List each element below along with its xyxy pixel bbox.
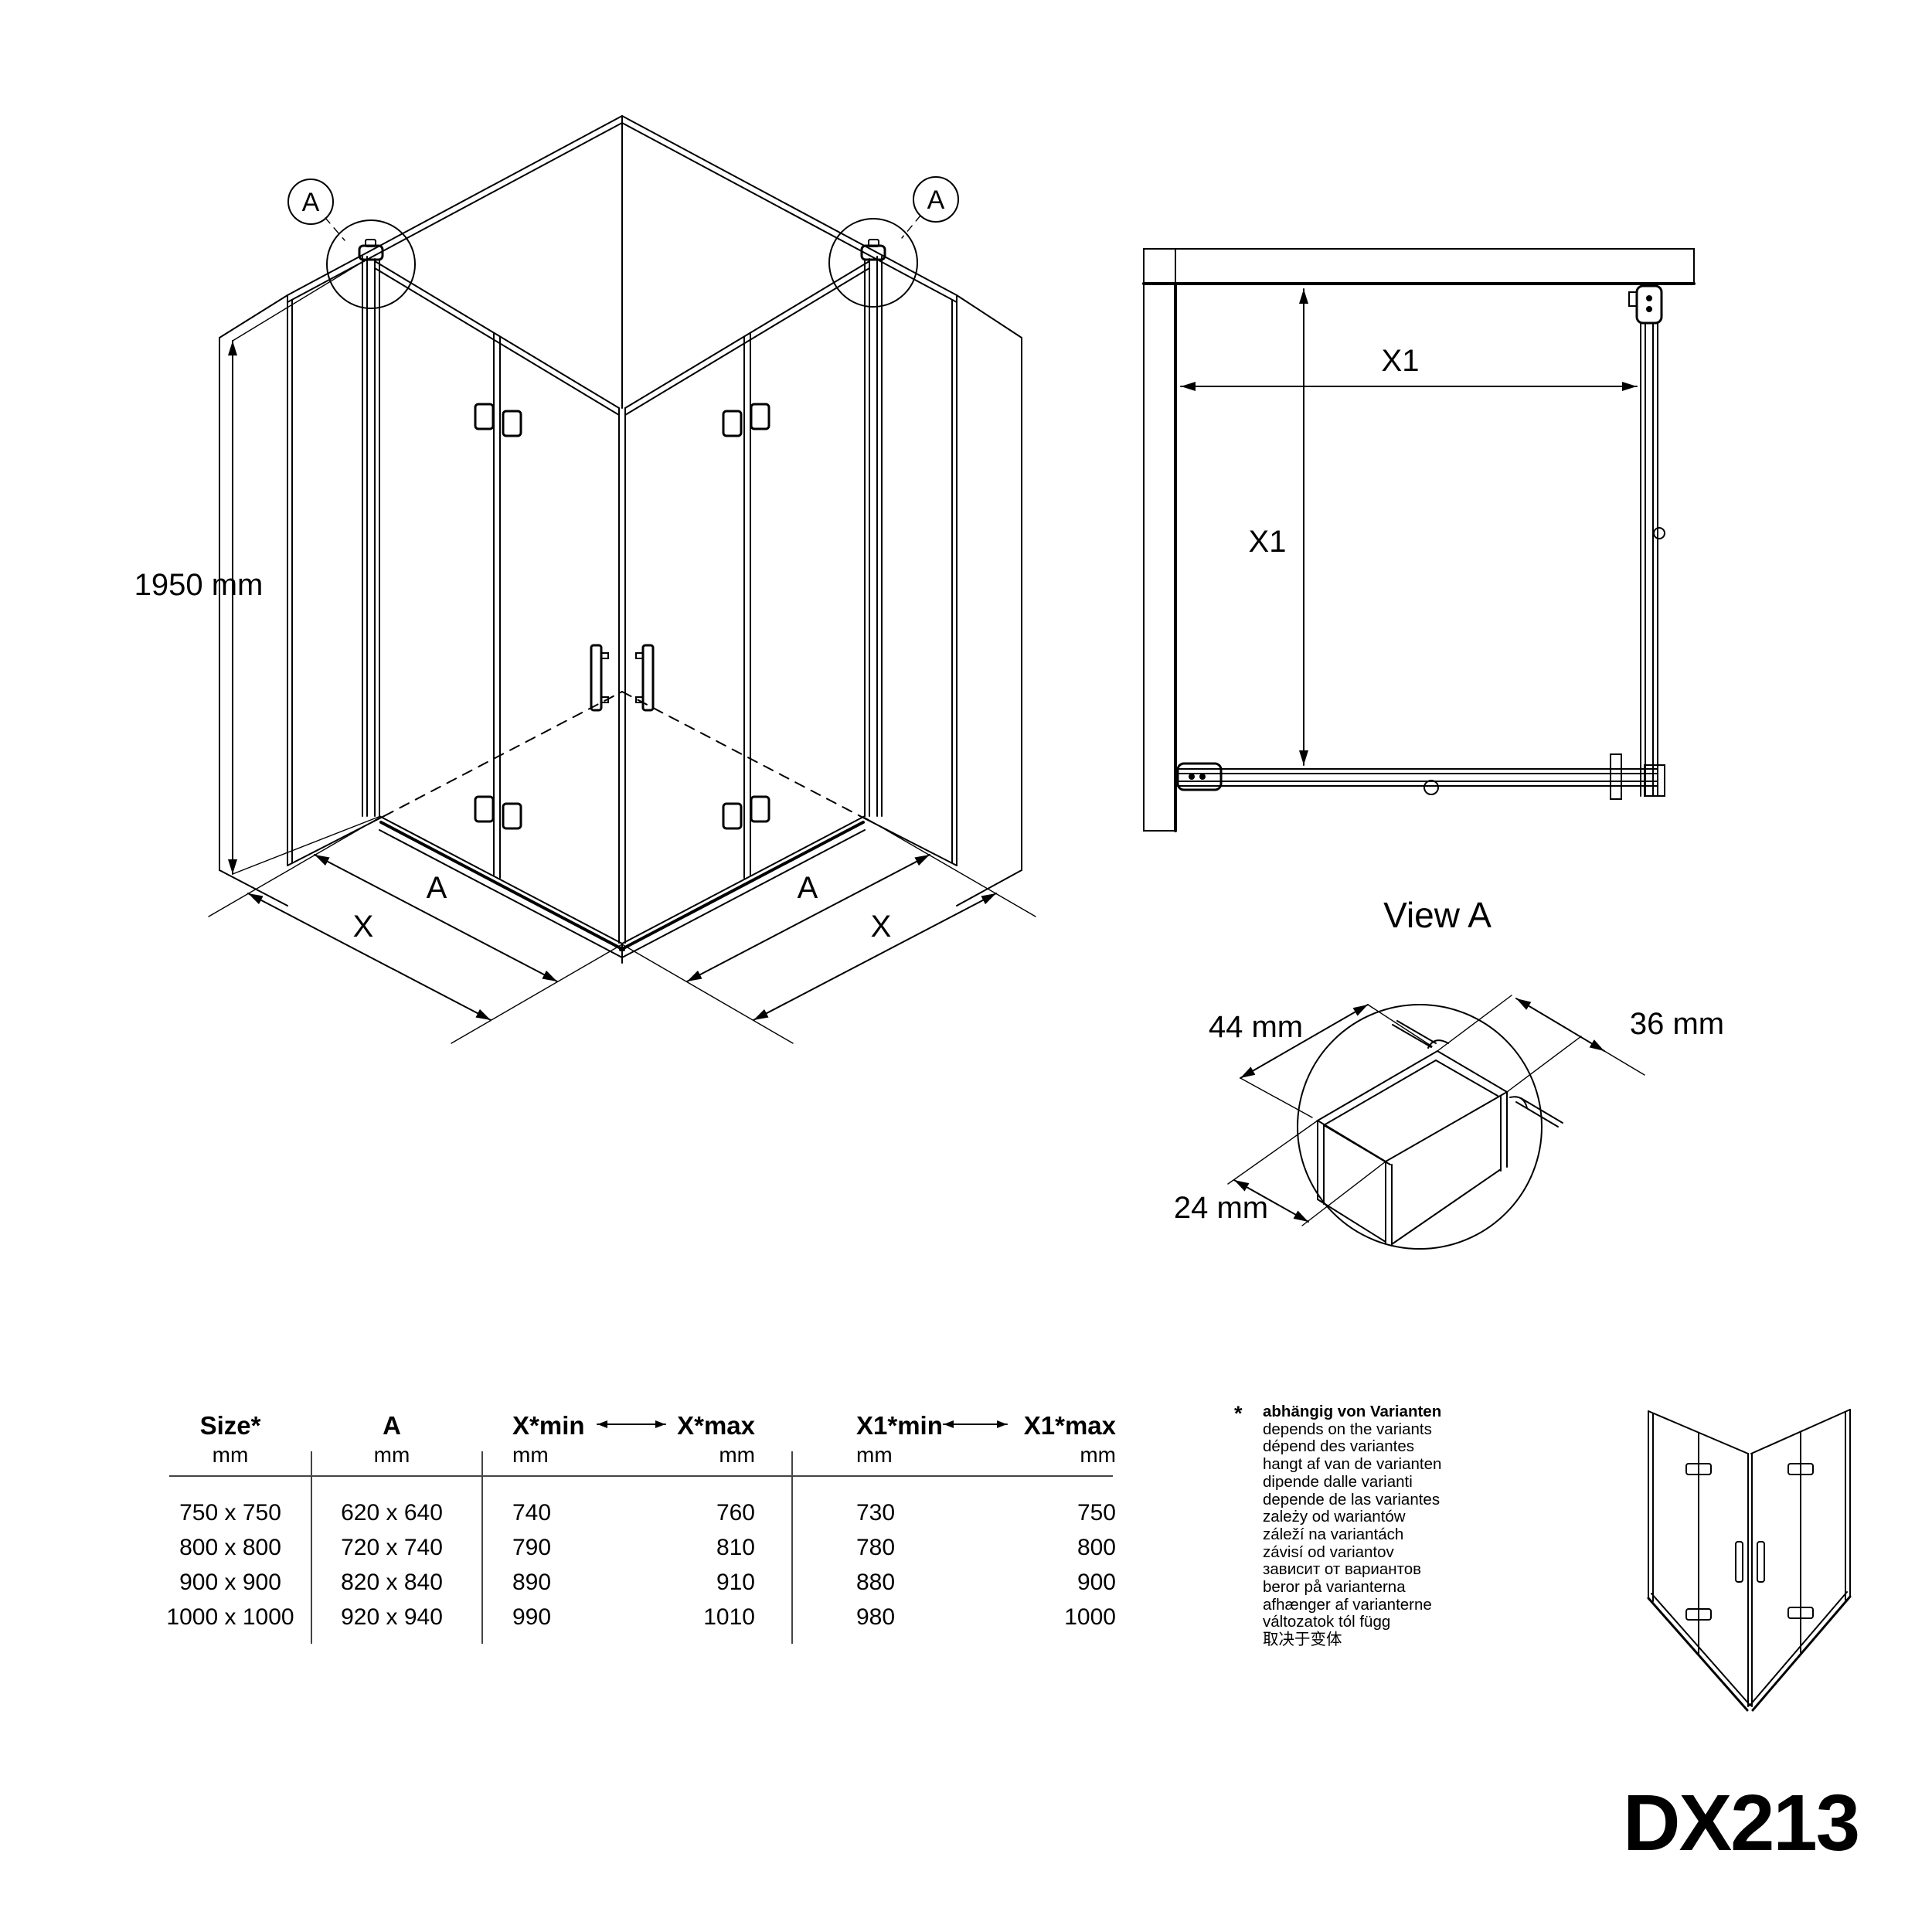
wall-profile-right [862,240,885,816]
table-column-x1max: X1*max mm 750 800 900 1000 [992,1413,1116,1439]
footnote-line: zależy od wariantów [1263,1509,1566,1526]
column-header: X*max [639,1413,755,1439]
column-unit: mm [639,1444,755,1467]
table-column-a: A mm 620 x 640 720 x 740 820 x 840 920 x… [315,1413,469,1439]
table-cell: 780 [856,1536,980,1560]
column-unit: mm [856,1444,980,1467]
table-separator [791,1451,793,1644]
footnote-line: beror på varianterna [1263,1579,1566,1597]
plan-dimension-horizontal: X1 [1181,344,1637,386]
footnote-line: 取决于变体 [1263,1631,1566,1649]
wall-profile-left [359,240,383,816]
product-thumbnail-icon [1631,1399,1870,1723]
table-cell: 730 [856,1501,980,1526]
mini-handles [1736,1542,1764,1582]
footnote-line: depends on the variants [1263,1421,1566,1439]
table-cell: 820 x 840 [315,1570,469,1595]
table-cell: 890 [512,1570,628,1595]
back-glass-panels [287,116,957,866]
wall-hatching [1144,249,1694,831]
table-cell: 1010 [639,1605,755,1630]
shower-tray [379,692,865,963]
plan-x1-horizontal-label: X1 [1382,344,1420,378]
table-separator [481,1451,483,1644]
plan-bottom-profile [1178,754,1665,799]
variants-footnote: * abhängig von Varianten depends on the … [1234,1403,1566,1649]
column-header: A [315,1413,469,1439]
detail-36mm-label: 36 mm [1630,1007,1724,1041]
table-cell: 900 [992,1570,1116,1595]
detail-circle-right: A [829,177,958,307]
footnote-line: abhängig von Varianten [1263,1403,1566,1421]
footnote-line: változatok tól függ [1263,1614,1566,1631]
table-cell: 920 x 940 [315,1605,469,1630]
plan-x1-vertical-label: X1 [1249,525,1287,559]
hinge [475,404,769,828]
table-cell: 720 x 740 [315,1536,469,1560]
table-cell: 1000 x 1000 [145,1605,315,1630]
column-header: Size* [145,1413,315,1439]
balloon-a-left-label: A [302,188,320,217]
column-unit: mm [512,1444,628,1467]
table-cell: 810 [639,1536,755,1560]
footnote-line: hangt af van de varianten [1263,1456,1566,1474]
profile-detail-view: 44 mm 36 mm 24 mm [1144,974,1777,1329]
footnote-line: зависит от вариантов [1263,1561,1566,1579]
door-handle [591,645,653,710]
view-a-plan: X1 X1 View A [1113,224,1777,1028]
detail-dimensions: 44 mm 36 mm 24 mm [1174,995,1724,1226]
plan-dimension-vertical: X1 [1249,289,1304,765]
isometric-drawing: 1950 mm A X A X A [93,62,1097,1182]
dimension-x-right-label: X [871,910,892,944]
height-dimension: 1950 mm [134,262,379,874]
balloon-a-right-label: A [927,185,945,215]
background-walls [219,295,1022,906]
table-column-xmax: X*max mm 760 810 910 1010 [639,1413,755,1439]
footnote-line: dépend des variantes [1263,1438,1566,1456]
mini-enclosure-outline [1648,1410,1850,1710]
dimension-a-left-label: A [427,871,447,905]
bifold-door-left [375,261,625,943]
model-number: DX213 [1588,1777,1859,1869]
table-cell: 880 [856,1570,980,1595]
table-column-size: Size* mm 750 x 750 800 x 800 900 x 900 1… [145,1413,315,1439]
table-cell: 800 [992,1536,1116,1560]
mini-hinges [1686,1464,1813,1620]
view-a-caption: View A [1383,895,1492,935]
footnote-line: afhænger af varianterne [1263,1597,1566,1614]
table-cell: 750 [992,1501,1116,1526]
table-cell: 790 [512,1536,628,1560]
height-dimension-label: 1950 mm [134,568,264,602]
width-dimensions-left: A X [209,818,622,1043]
table-cell: 800 x 800 [145,1536,315,1560]
footnote-line: dipende dalle varianti [1263,1474,1566,1492]
column-unit: mm [992,1444,1116,1467]
detail-44mm-label: 44 mm [1209,1010,1303,1044]
table-cell: 980 [856,1605,980,1630]
table-cell: 740 [512,1501,628,1526]
table-cell: 900 x 900 [145,1570,315,1595]
footnote-line: depende de las variantes [1263,1492,1566,1509]
asterisk-marker: * [1234,1405,1243,1423]
table-cell: 910 [639,1570,755,1595]
bifold-door-right [625,261,869,878]
dimension-a-right-label: A [798,871,818,905]
table-cell: 750 x 750 [145,1501,315,1526]
column-unit: mm [145,1444,315,1467]
column-unit: mm [315,1444,469,1467]
footnote-lines: abhängig von Varianten depends on the va… [1263,1403,1566,1649]
profile-cross-section [1318,1021,1563,1246]
column-header: X1*max [992,1413,1116,1439]
table-cell: 990 [512,1605,628,1630]
footnote-line: závisí od variantov [1263,1544,1566,1562]
detail-24mm-label: 24 mm [1174,1191,1268,1225]
table-cell: 760 [639,1501,755,1526]
footnote-line: záleží na variantách [1263,1526,1566,1544]
width-dimensions-right: A X [622,818,1036,1043]
table-cell: 620 x 640 [315,1501,469,1526]
dimension-x-left-label: X [353,910,374,944]
technical-drawing-page: 1950 mm A X A X A [0,0,1932,1932]
table-cell: 1000 [992,1605,1116,1630]
plan-right-profile [1629,286,1665,796]
